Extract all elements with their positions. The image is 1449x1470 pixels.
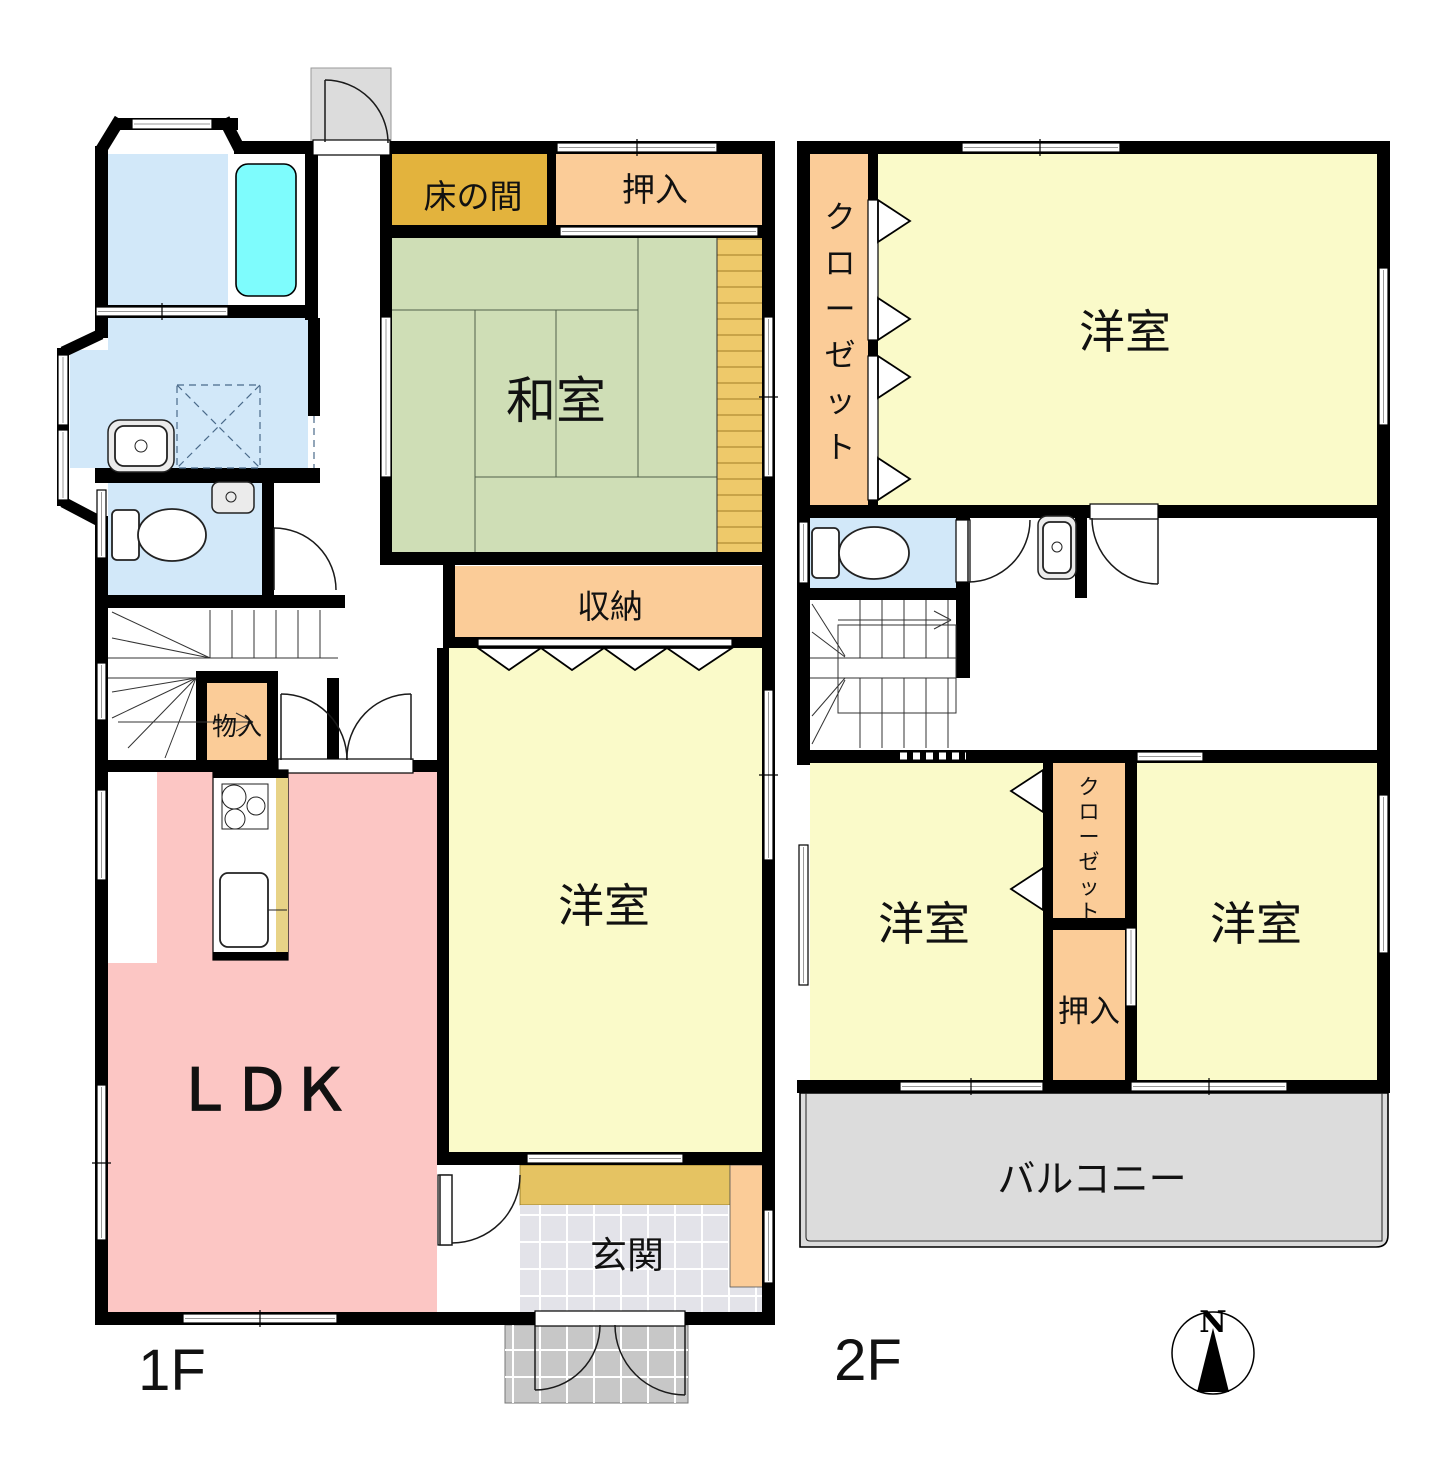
floor1: 床の間 押入 和室 収納 物入 洋室 ＬＤＫ 玄関 1F xyxy=(57,68,778,1403)
kitchen-sink xyxy=(220,873,268,947)
label-oshiire-2f: 押入 xyxy=(1058,994,1120,1029)
floor2: クローゼット 洋室 洋室 洋室 クローゼット 押入 バルコニー 2F xyxy=(797,139,1390,1393)
label-youshitsu2-main: 洋室 xyxy=(1079,306,1171,358)
stairs-2f xyxy=(810,600,956,748)
label-shunou: 収納 xyxy=(577,588,643,625)
label-oshiire-1f: 押入 xyxy=(622,171,688,208)
label-tokonoma: 床の間 xyxy=(424,178,523,215)
label-floor2: 2F xyxy=(834,1328,902,1393)
label-youshitsu2-right: 洋室 xyxy=(1210,898,1302,950)
washroom-sink xyxy=(108,420,174,472)
toilet-1f xyxy=(112,509,206,561)
label-balcony: バルコニー xyxy=(997,1159,1186,1201)
label-floor1: 1F xyxy=(138,1338,206,1403)
engawa-stripes xyxy=(717,238,762,552)
hall-sink-2f xyxy=(1038,516,1076,579)
label-washitsu: 和室 xyxy=(506,373,606,429)
shoe-cabinet xyxy=(730,1165,766,1287)
label-youshitsu-1f: 洋室 xyxy=(558,880,650,932)
bathtub xyxy=(236,164,296,296)
floor1-room-fills xyxy=(70,68,766,1403)
back-porch xyxy=(311,68,391,143)
kitchen-unit xyxy=(213,770,288,960)
washroom-bay xyxy=(70,350,110,468)
genkan-step xyxy=(520,1165,730,1205)
label-ldk: ＬＤＫ xyxy=(175,1058,349,1123)
toilet-1f-sink xyxy=(212,482,254,513)
label-monoire: 物入 xyxy=(212,713,262,741)
compass-north-label: N xyxy=(1199,1305,1226,1340)
bay-wall-bottom xyxy=(63,502,101,522)
label-youshitsu2-left: 洋室 xyxy=(878,898,970,950)
floor-plan-drawing: 床の間 押入 和室 収納 物入 洋室 ＬＤＫ 玄関 1F xyxy=(0,0,1449,1470)
toilet-2f xyxy=(812,527,909,579)
floor-plan-page: 床の間 押入 和室 収納 物入 洋室 ＬＤＫ 玄関 1F xyxy=(0,0,1449,1470)
label-genkan: 玄関 xyxy=(590,1235,664,1276)
bay-wall-top xyxy=(63,334,101,352)
compass: N xyxy=(1172,1305,1254,1394)
bevel-wall-left xyxy=(101,119,120,150)
bathroom-floor xyxy=(95,154,228,305)
